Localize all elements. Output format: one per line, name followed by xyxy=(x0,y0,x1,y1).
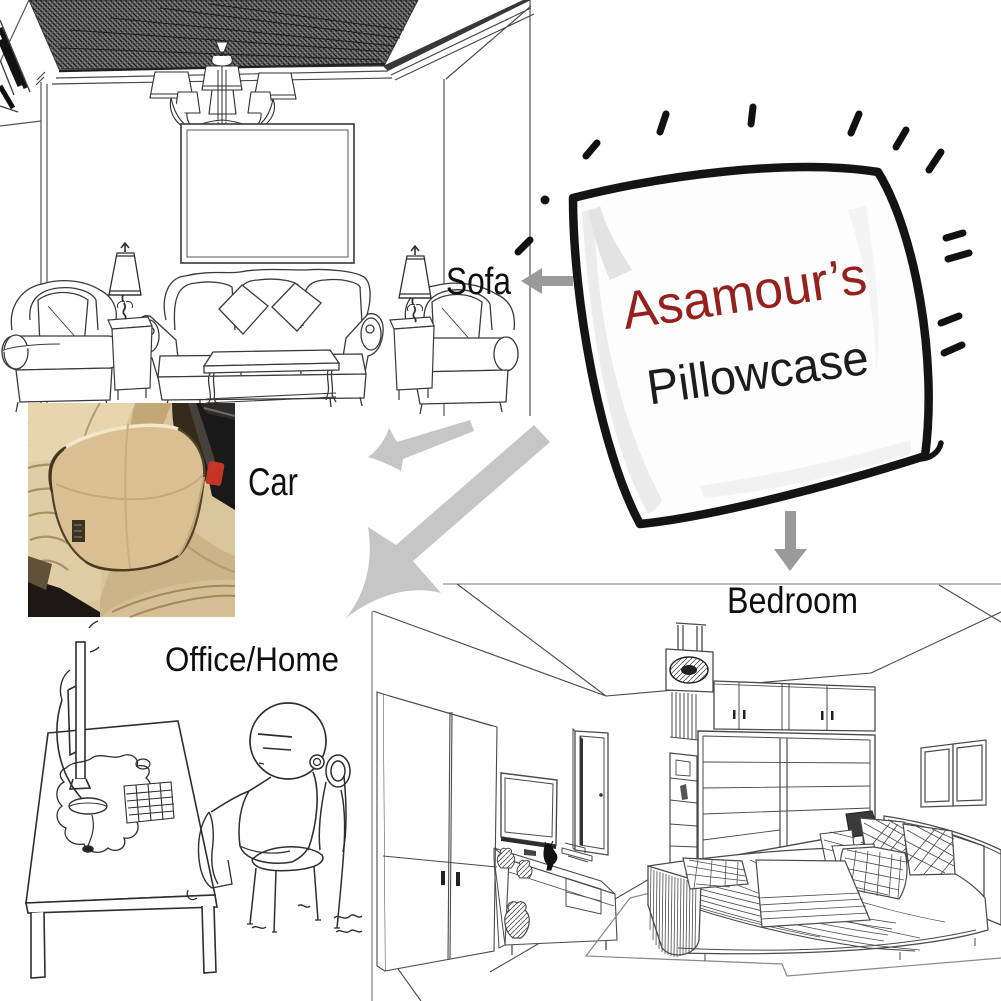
svg-text:Office/Home: Office/Home xyxy=(165,641,339,679)
svg-text:Sofa: Sofa xyxy=(446,261,512,303)
svg-text:Car: Car xyxy=(248,461,298,504)
svg-text:Bedroom: Bedroom xyxy=(727,580,858,621)
